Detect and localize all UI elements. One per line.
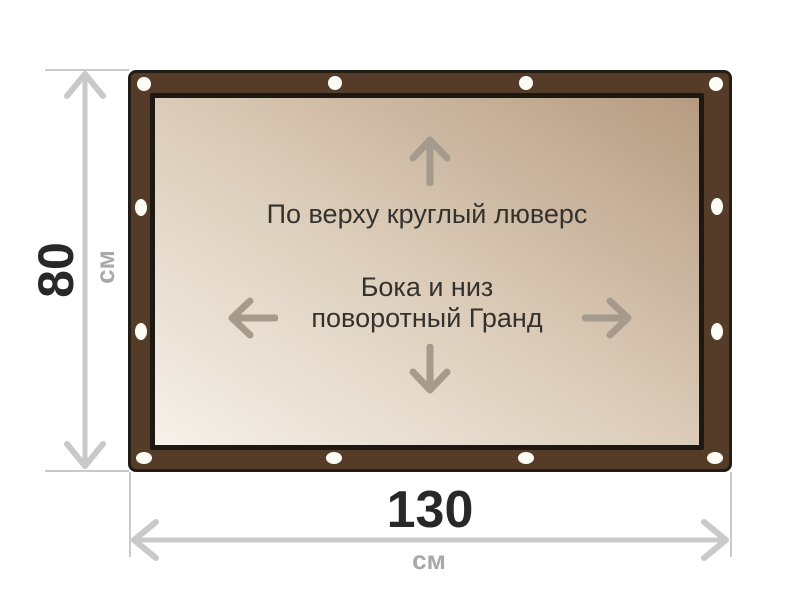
grommet-icon <box>328 76 342 90</box>
grommet-icon <box>135 199 147 216</box>
width-value-label: 130 <box>320 484 540 536</box>
grommet-icon <box>709 77 723 91</box>
width-unit-label: см <box>369 546 489 574</box>
arrow-left-icon <box>226 296 278 340</box>
height-value-label: 80 <box>28 210 84 330</box>
annotation-top-edge: По верху круглый люверс <box>155 199 699 230</box>
grommet-icon <box>707 452 723 464</box>
grommet-icon <box>136 452 152 464</box>
height-unit-label: см <box>91 227 119 307</box>
width-extension-line-right <box>730 472 732 557</box>
grommet-icon <box>711 323 723 340</box>
arrow-right-icon <box>582 296 634 340</box>
grommet-icon <box>519 76 533 90</box>
grommet-icon <box>711 198 723 215</box>
banner-size-diagram: По верху круглый люверс Бока и низ повор… <box>0 0 800 600</box>
grommet-icon <box>137 77 151 91</box>
grommet-icon <box>518 452 534 464</box>
grommet-icon <box>326 452 342 464</box>
grommet-icon <box>135 323 147 340</box>
arrow-up-icon <box>408 134 452 186</box>
arrow-down-icon <box>408 344 452 396</box>
height-extension-line-bottom <box>45 470 129 472</box>
